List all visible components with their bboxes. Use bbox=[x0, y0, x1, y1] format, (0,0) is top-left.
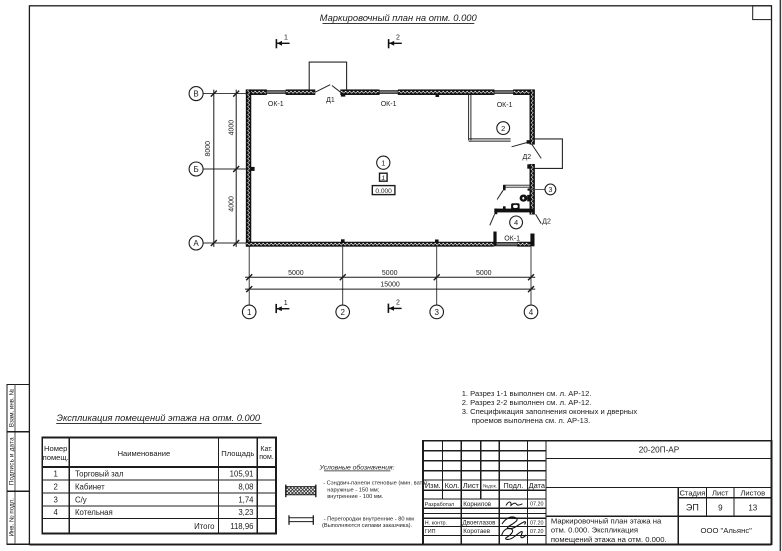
svg-text:2: 2 bbox=[396, 300, 400, 307]
svg-text:ЭП: ЭП bbox=[686, 502, 699, 512]
svg-text:Кол.: Кол. bbox=[445, 481, 460, 490]
svg-text:Взам. инв. №: Взам. инв. № bbox=[9, 388, 16, 427]
svg-text:Листов: Листов bbox=[740, 489, 765, 498]
svg-text:1: 1 bbox=[284, 300, 288, 307]
svg-text:помещ.: помещ. bbox=[43, 453, 69, 462]
svg-text:3: 3 bbox=[54, 495, 58, 504]
svg-text:Д2: Д2 bbox=[522, 154, 531, 161]
svg-text:3. Спецификация заполнения око: 3. Спецификация заполнения оконных и две… bbox=[462, 407, 638, 416]
svg-text:4000: 4000 bbox=[228, 120, 235, 136]
svg-text:2: 2 bbox=[396, 35, 400, 42]
svg-text:5000: 5000 bbox=[476, 270, 492, 277]
svg-text:В: В bbox=[193, 90, 198, 99]
svg-text:(Выполняются силами заказчика): (Выполняются силами заказчика). bbox=[322, 523, 412, 529]
svg-text:Инв. № подл.: Инв. № подл. bbox=[9, 498, 16, 537]
svg-text:1: 1 bbox=[247, 308, 252, 317]
svg-text:№док.: №док. bbox=[483, 484, 497, 490]
svg-text:Наименование: Наименование bbox=[118, 449, 171, 458]
svg-text:8000: 8000 bbox=[205, 141, 212, 157]
svg-text:Кат.: Кат. bbox=[260, 446, 272, 453]
svg-text:3,23: 3,23 bbox=[238, 508, 253, 517]
svg-text:118,96: 118,96 bbox=[230, 522, 253, 531]
svg-text:13: 13 bbox=[748, 503, 757, 512]
svg-text:Экспликация помещений этажа на: Экспликация помещений этажа на отм. 0.00… bbox=[57, 413, 261, 423]
svg-text:ОК-1: ОК-1 bbox=[381, 101, 397, 108]
svg-text:ОК-1: ОК-1 bbox=[268, 101, 284, 108]
svg-text:Подл.: Подл. bbox=[503, 481, 523, 490]
svg-text:Корнилов: Корнилов bbox=[463, 501, 491, 508]
svg-text:4: 4 bbox=[54, 508, 59, 517]
svg-text:4: 4 bbox=[514, 218, 518, 227]
svg-text:ООО "Альянс": ООО "Альянс" bbox=[700, 526, 752, 535]
svg-text:Торговый зал: Торговый зал bbox=[75, 470, 124, 479]
svg-text:8,08: 8,08 bbox=[238, 483, 253, 492]
svg-text:- Сэндвич-панели стеновые (мин: - Сэндвич-панели стеновые (мин. вата): bbox=[323, 481, 429, 487]
svg-text:9: 9 bbox=[718, 503, 723, 512]
svg-text:Номер: Номер bbox=[44, 444, 67, 453]
svg-text:2: 2 bbox=[54, 483, 58, 492]
svg-text:Условные обозначения:: Условные обозначения: bbox=[318, 463, 394, 471]
svg-text:1,74: 1,74 bbox=[238, 495, 254, 504]
svg-text:105,91: 105,91 bbox=[230, 470, 254, 479]
svg-text:0.000: 0.000 bbox=[375, 188, 392, 195]
svg-text:ОК-1: ОК-1 bbox=[497, 102, 513, 109]
svg-text:Лист: Лист bbox=[712, 489, 729, 498]
svg-text:07.20: 07.20 bbox=[530, 529, 544, 535]
svg-text:проемов выполнена см. л. АР-13: проемов выполнена см. л. АР-13. bbox=[472, 416, 591, 425]
svg-text:С/у: С/у bbox=[75, 495, 87, 504]
svg-text:Н. контр.: Н. контр. bbox=[425, 521, 447, 527]
svg-text:5000: 5000 bbox=[288, 270, 304, 277]
svg-text:Итого: Итого bbox=[194, 522, 215, 531]
svg-text:Лист: Лист bbox=[463, 481, 480, 490]
svg-text:внутренние - 100 мм.: внутренние - 100 мм. bbox=[327, 494, 384, 500]
svg-text:5000: 5000 bbox=[382, 270, 398, 277]
svg-text:Кабинет: Кабинет bbox=[75, 483, 105, 492]
svg-text:15000: 15000 bbox=[380, 282, 400, 289]
svg-text:Маркировочный план на отм. 0.0: Маркировочный план на отм. 0.000 bbox=[320, 12, 478, 23]
svg-text:помещений этажа на отм. 0.000.: помещений этажа на отм. 0.000. bbox=[551, 535, 667, 544]
svg-text:пом.: пом. bbox=[259, 454, 273, 461]
svg-text:2: 2 bbox=[340, 308, 345, 317]
svg-text:3: 3 bbox=[434, 308, 439, 317]
svg-text:3: 3 bbox=[548, 187, 552, 194]
svg-text:Д1: Д1 bbox=[326, 97, 335, 104]
svg-text:Дата: Дата bbox=[529, 481, 546, 490]
svg-text:1: 1 bbox=[284, 35, 288, 42]
svg-text:ГИП: ГИП bbox=[425, 529, 436, 535]
svg-text:Стадия: Стадия bbox=[679, 489, 705, 498]
svg-text:наружные - 150 мм;: наружные - 150 мм; bbox=[327, 487, 379, 493]
svg-text:Д2: Д2 bbox=[542, 219, 551, 226]
svg-text:Коротаев: Коротаев bbox=[463, 528, 490, 535]
svg-text:ОК-1: ОК-1 bbox=[504, 235, 520, 242]
svg-text:1: 1 bbox=[381, 175, 385, 182]
svg-text:Изм.: Изм. bbox=[425, 481, 441, 490]
svg-text:2. Разрез 2-2 выполнен см. л.: 2. Разрез 2-2 выполнен см. л. АР-12. bbox=[462, 398, 592, 407]
svg-text:4: 4 bbox=[529, 308, 534, 317]
svg-text:1: 1 bbox=[54, 470, 58, 479]
svg-text:Площадь: Площадь bbox=[221, 449, 254, 458]
svg-text:Котельная: Котельная bbox=[75, 508, 113, 517]
svg-text:Разработал: Разработал bbox=[425, 502, 454, 508]
svg-text:1. Разрез 1-1 выполнен см. л.: 1. Разрез 1-1 выполнен см. л. АР-12. bbox=[462, 389, 592, 398]
svg-text:2: 2 bbox=[501, 124, 505, 133]
svg-text:4000: 4000 bbox=[228, 196, 235, 212]
svg-text:- Перегородки внутренние - 80: - Перегородки внутренние - 80 мм bbox=[324, 516, 414, 522]
svg-text:Двоеглазов: Двоеглазов bbox=[463, 520, 497, 527]
svg-text:07.20: 07.20 bbox=[530, 520, 544, 526]
svg-text:20-20П-АР: 20-20П-АР bbox=[639, 446, 680, 455]
svg-text:1: 1 bbox=[381, 159, 385, 168]
svg-text:отм. 0.000. Экспликация: отм. 0.000. Экспликация bbox=[551, 526, 638, 535]
svg-text:07.20: 07.20 bbox=[530, 502, 544, 508]
svg-text:А: А bbox=[193, 239, 199, 248]
svg-text:Маркировочный план этажа на: Маркировочный план этажа на bbox=[551, 516, 662, 525]
svg-text:Б: Б bbox=[193, 165, 198, 174]
svg-text:Подпись и дата: Подпись и дата bbox=[9, 437, 16, 485]
